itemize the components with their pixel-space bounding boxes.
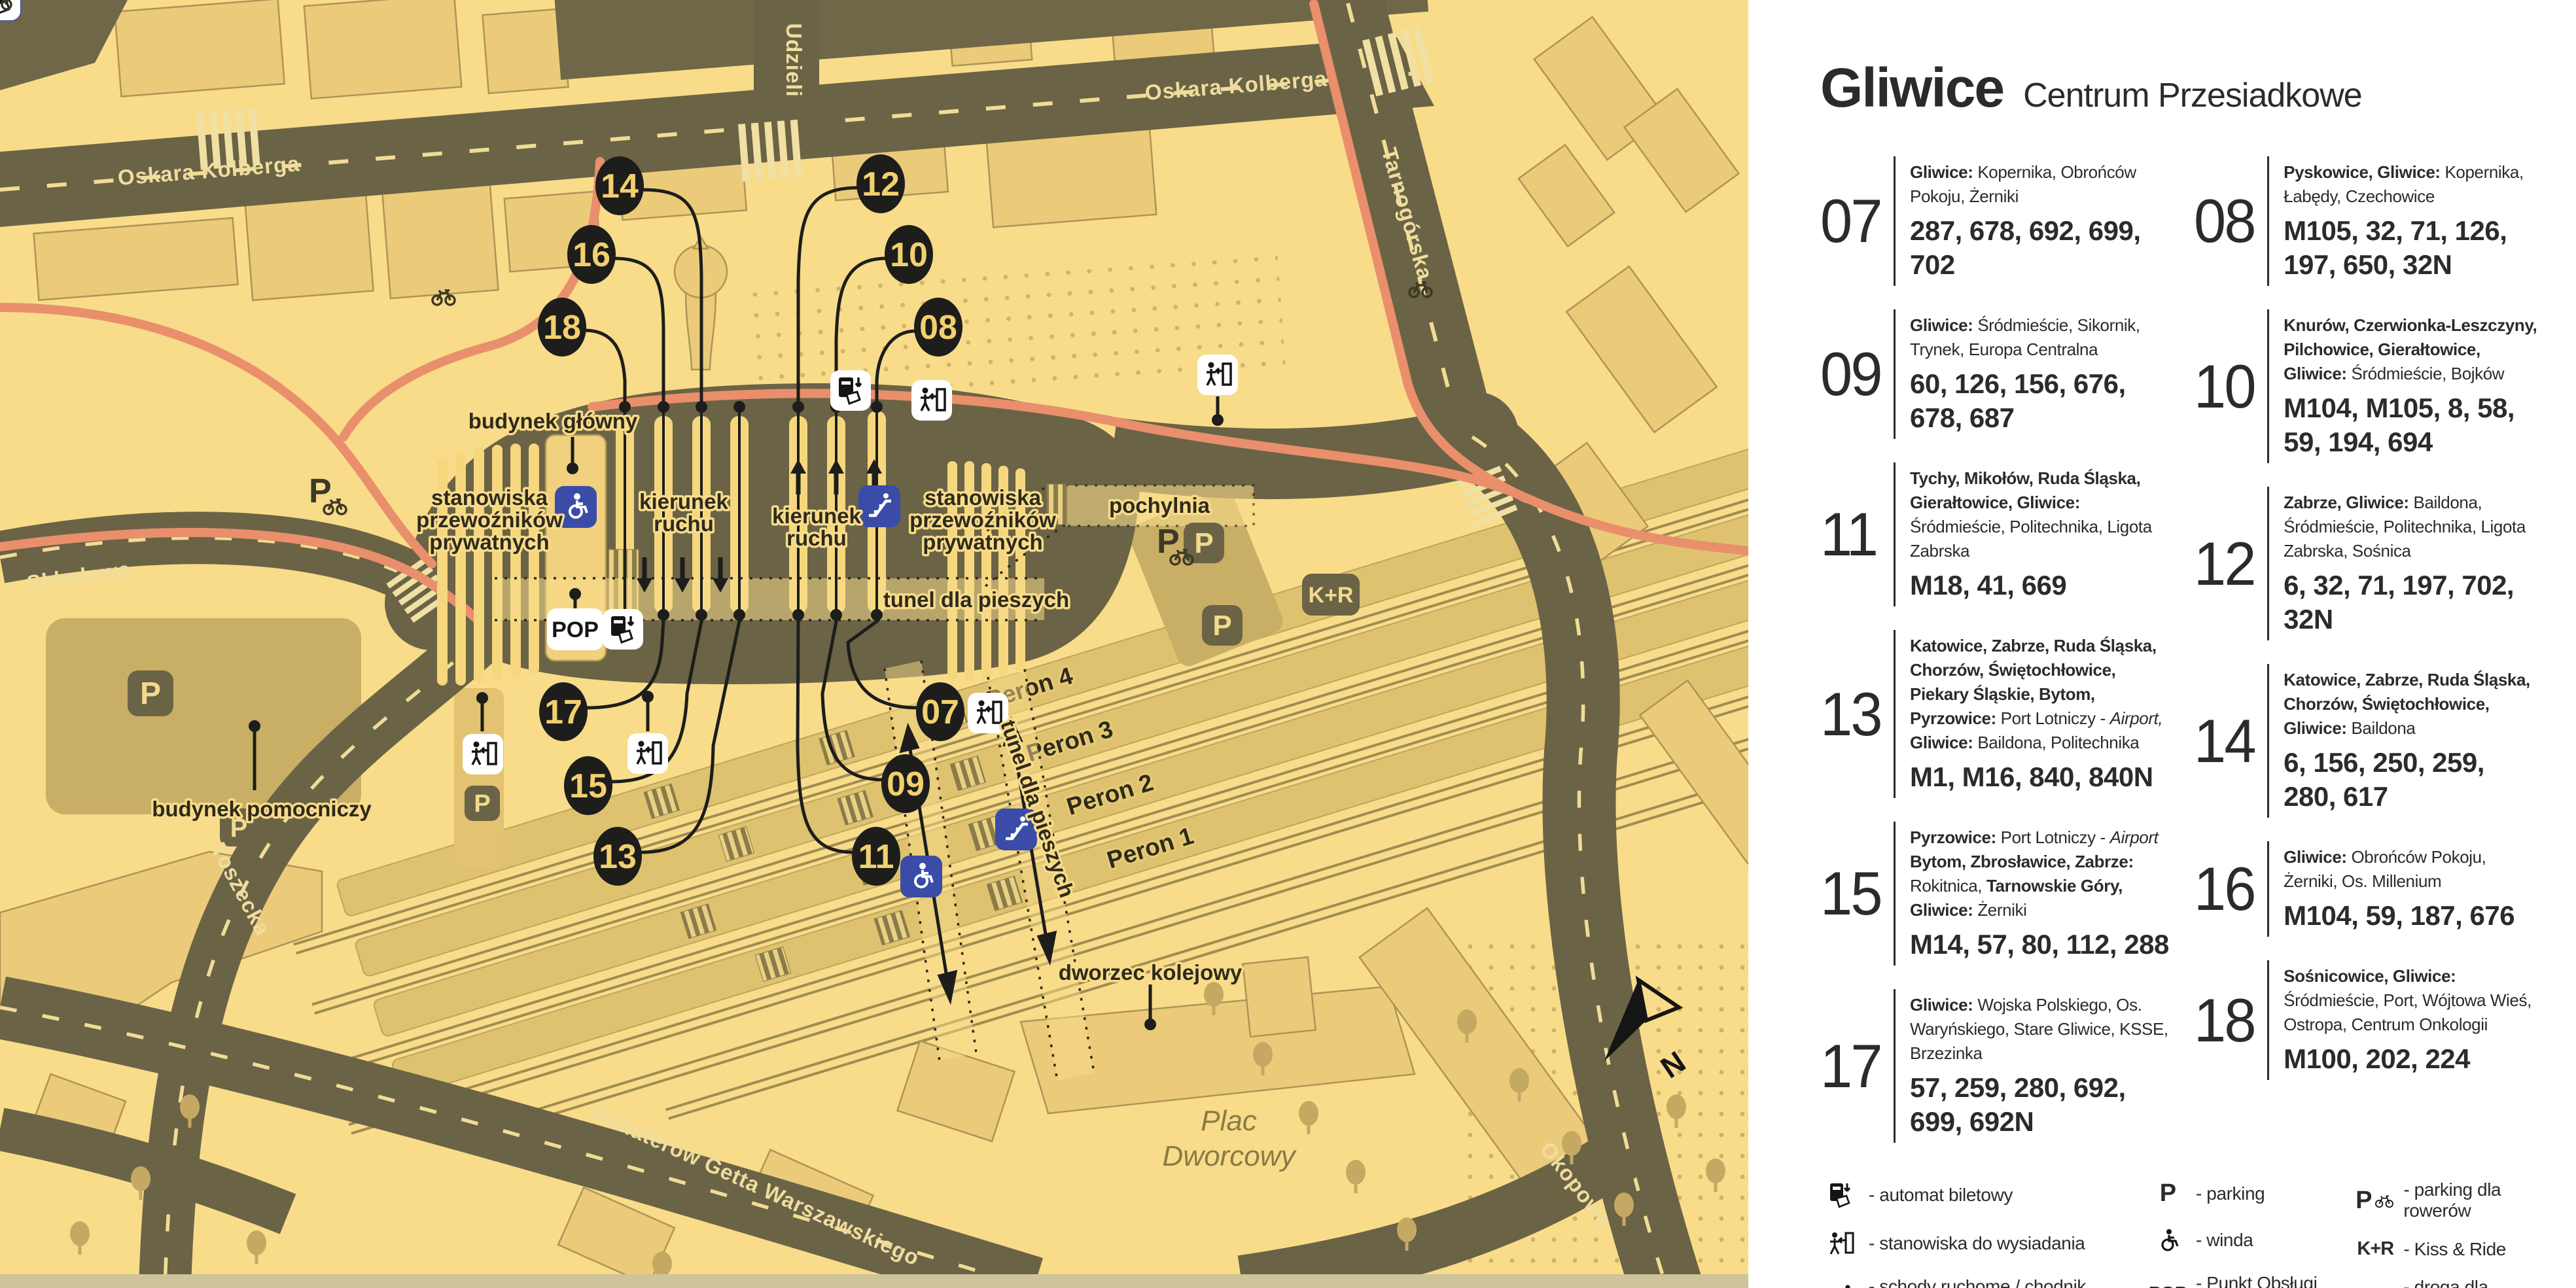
- legend-item: P- parking: [2147, 1179, 2338, 1208]
- stop-lines: M105, 32, 71, 126, 197, 650, 32N: [2284, 214, 2539, 282]
- stanowiska-label-left: stanowiska przewoźników prywatnych: [416, 485, 563, 554]
- legend-item: - stanowiska do wysiadania: [1820, 1228, 2130, 1259]
- legend-label: - parking dla rowerów: [2403, 1179, 2539, 1221]
- kiss-ride-icon: K+R: [2355, 1238, 2395, 1260]
- stop-destinations: Gliwice: Śródmieście, Sikornik, Trynek, …: [1910, 313, 2178, 362]
- stop-circle-10: 10: [885, 225, 933, 284]
- svg-text:ruchu: ruchu: [654, 512, 714, 536]
- svg-text:kierunek: kierunek: [639, 489, 728, 513]
- svg-text:08: 08: [919, 309, 957, 347]
- stop-entry-10: 10Knurów, Czerwionka-Leszczyny, Pilchowi…: [2194, 309, 2539, 463]
- svg-text:ruchu: ruchu: [786, 526, 847, 550]
- stop-entry-07: 07Gliwice: Kopernika, Obrońców Pokoju, Ż…: [1820, 156, 2178, 286]
- entries-column-1: 07Gliwice: Kopernika, Obrońców Pokoju, Ż…: [1820, 156, 2178, 1143]
- stop-number: 16: [2194, 858, 2263, 920]
- stop-circle-17: 17: [539, 682, 588, 741]
- stop-lines: M18, 41, 669: [1910, 568, 2178, 602]
- stop-circle-07: 07: [916, 682, 964, 741]
- legend-label: - Punkt Obsługi Pasażera ZTM: [2196, 1273, 2338, 1288]
- legend-item: - schody ruchome / chodnik ruchomy: [1820, 1276, 2130, 1288]
- ticket-machine-icon: [1820, 1179, 1861, 1211]
- stop-lines: 60, 126, 156, 676, 678, 687: [1910, 367, 2178, 435]
- legend-label: - schody ruchome / chodnik ruchomy: [1869, 1276, 2130, 1288]
- pop-icon: POP: [2147, 1283, 2188, 1288]
- stop-number: 14: [2194, 710, 2263, 772]
- svg-text:K+R: K+R: [1309, 583, 1354, 608]
- legend-label: - stanowiska do wysiadania: [1869, 1233, 2085, 1254]
- legend-label: - winda: [2196, 1230, 2253, 1251]
- svg-text:Dworcowy: Dworcowy: [1163, 1140, 1297, 1172]
- stop-number: 10: [2194, 356, 2263, 417]
- stop-number: 07: [1820, 190, 1889, 252]
- stop-circle-16: 16: [567, 225, 616, 284]
- svg-text:Plac: Plac: [1201, 1105, 1257, 1137]
- stop-number: 13: [1820, 684, 1889, 745]
- ticket-machine-icon: [830, 370, 871, 411]
- page-title: Gliwice: [1820, 56, 2003, 120]
- alighting-strip: [454, 688, 504, 869]
- stop-number: 12: [2194, 533, 2263, 595]
- stop-lines: M104, 59, 187, 676: [2284, 899, 2539, 933]
- stop-destinations: Zabrze, Gliwice: Baildona, Śródmieście, …: [2284, 491, 2539, 563]
- gliwice-interchange-map-poster: Peron 4 Peron 3 Peron 2 Peron 1: [0, 0, 2576, 1288]
- ticket-machine-icon: [603, 609, 643, 650]
- map-area: Peron 4 Peron 3 Peron 2 Peron 1: [0, 0, 1748, 1288]
- stop-destinations: Pyrzowice: Port Lotniczy - Airport Bytom…: [1910, 826, 2178, 922]
- map-bottom-strip: [0, 1274, 1748, 1288]
- stop-destinations: Pyskowice, Gliwice: Kopernika, Łabędy, C…: [2284, 160, 2539, 209]
- svg-text:12: 12: [862, 165, 900, 203]
- stop-entry-13: 13Katowice, Zabrze, Ruda Śląska, Chorzów…: [1820, 630, 2178, 798]
- map-svg: Peron 4 Peron 3 Peron 2 Peron 1: [0, 0, 1748, 1288]
- svg-text:P: P: [1212, 610, 1231, 642]
- pop-badge: POP: [547, 608, 603, 650]
- stop-destinations: Tychy, Mikołów, Ruda Śląska, Gierałtowic…: [1910, 466, 2178, 563]
- stop-lines: M14, 57, 80, 112, 288: [1910, 928, 2178, 962]
- stop-lines: 6, 32, 71, 197, 702, 32N: [2284, 568, 2539, 636]
- alighting-stand-icon: [1197, 355, 1238, 395]
- stop-number: 09: [1820, 343, 1889, 405]
- budynek-glowny-label: budynek główny: [468, 409, 638, 433]
- dworzec-kolejowy-label: dworzec kolejowy: [1059, 960, 1243, 984]
- stop-lines: M104, M105, 8, 58, 59, 194, 694: [2284, 391, 2539, 459]
- svg-text:14: 14: [601, 167, 639, 205]
- legend-item: - automat biletowy: [1820, 1179, 2130, 1211]
- stop-circle-13: 13: [593, 827, 642, 886]
- stop-circle-09: 09: [881, 754, 930, 813]
- alighting-stand-icon: [463, 734, 503, 775]
- legend-item: K+R- Kiss & Ride: [2355, 1238, 2539, 1260]
- stop-circle-12: 12: [856, 154, 905, 213]
- legend-item: - winda: [2147, 1225, 2338, 1256]
- stop-lines: M1, M16, 840, 840N: [1910, 760, 2178, 794]
- stop-entry-17: 17Gliwice: Wojska Polskiego, Os. Waryńsk…: [1820, 989, 2178, 1143]
- legend-label: - automat biletowy: [1869, 1185, 2013, 1206]
- parking-icon: P: [2147, 1179, 2188, 1208]
- svg-text:10: 10: [890, 236, 928, 274]
- legend-label: - Kiss & Ride: [2403, 1239, 2506, 1260]
- elevator-icon: [900, 856, 942, 897]
- stop-lines: 6, 156, 250, 259, 280, 617: [2284, 746, 2539, 814]
- legend-column-1: - automat biletowy - stanowiska do wysia…: [1820, 1179, 2130, 1288]
- tunel-label-horizontal: tunel dla pieszych: [883, 587, 1069, 612]
- svg-text:kierunek: kierunek: [772, 504, 861, 528]
- svg-text:przewoźników: przewoźników: [416, 508, 563, 532]
- stop-destinations: Gliwice: Wojska Polskiego, Os. Waryńskie…: [1910, 993, 2178, 1066]
- stop-entry-11: 11Tychy, Mikołów, Ruda Śląska, Gierałtow…: [1820, 462, 2178, 606]
- stop-destinations: Katowice, Zabrze, Ruda Śląska, Chorzów, …: [1910, 634, 2178, 755]
- legend-label: - droga dla rowerów: [2403, 1277, 2539, 1288]
- bike-parking-icon: P: [2355, 1187, 2395, 1215]
- svg-text:15: 15: [569, 767, 607, 805]
- alighting-stand-icon: [911, 380, 952, 421]
- svg-text:07: 07: [921, 693, 959, 731]
- svg-text:16: 16: [573, 236, 610, 274]
- legend-label: - parking: [2196, 1183, 2265, 1204]
- legend-item: POP- Punkt Obsługi Pasażera ZTM: [2147, 1273, 2338, 1288]
- stop-entry-15: 15Pyrzowice: Port Lotniczy - Airport Byt…: [1820, 822, 2178, 966]
- kiss-and-ride-badge: K+R: [1302, 574, 1360, 616]
- svg-text:P: P: [474, 790, 490, 818]
- exit-icon: [1820, 1228, 1861, 1259]
- svg-text:11: 11: [858, 838, 894, 876]
- stop-destinations: Katowice, Zabrze, Ruda Śląska, Chorzów, …: [2284, 668, 2539, 740]
- stop-entry-14: 14Katowice, Zabrze, Ruda Śląska, Chorzów…: [2194, 664, 2539, 818]
- legend-column-3: P - parking dla rowerówK+R- Kiss & Ride …: [2355, 1179, 2539, 1288]
- legend: - automat biletowy - stanowiska do wysia…: [1820, 1179, 2539, 1288]
- stop-number: 08: [2194, 190, 2263, 252]
- stop-entry-12: 12Zabrze, Gliwice: Baildona, Śródmieście…: [2194, 487, 2539, 640]
- svg-text:09: 09: [887, 765, 925, 803]
- stop-entry-18: 18Sośnicowice, Gliwice: Śródmieście, Por…: [2194, 960, 2539, 1080]
- pochylnia-label: pochylnia: [1109, 493, 1210, 517]
- legend-item: P - parking dla rowerów: [2355, 1179, 2539, 1221]
- budynek-pomocniczy-label: budynek pomocniczy: [152, 797, 372, 821]
- svg-text:prywatnych: prywatnych: [923, 530, 1042, 554]
- stop-destinations: Gliwice: Kopernika, Obrońców Pokoju, Żer…: [1910, 160, 2178, 209]
- svg-text:13: 13: [599, 838, 637, 876]
- stop-entry-09: 09Gliwice: Śródmieście, Sikornik, Trynek…: [1820, 309, 2178, 439]
- svg-text:POP: POP: [552, 618, 599, 642]
- stop-circle-11: 11: [852, 827, 900, 886]
- stop-number: 17: [1820, 1036, 1889, 1097]
- stop-entry-16: 16Gliwice: Obrońców Pokoju, Żerniki, Os.…: [2194, 841, 2539, 937]
- stop-number: 11: [1820, 504, 1889, 565]
- stop-lines: 287, 678, 692, 699, 702: [1910, 214, 2178, 282]
- bike-icon: [2355, 1285, 2395, 1288]
- stop-entry-08: 08Pyskowice, Gliwice: Kopernika, Łabędy,…: [2194, 156, 2539, 286]
- stop-number: 15: [1820, 863, 1889, 924]
- svg-text:stanowiska: stanowiska: [925, 485, 1042, 510]
- stop-circle-08: 08: [914, 298, 962, 357]
- stop-destinations: Gliwice: Obrońców Pokoju, Żerniki, Os. M…: [2284, 845, 2539, 894]
- stop-entries: 07Gliwice: Kopernika, Obrońców Pokoju, Ż…: [1820, 156, 2539, 1143]
- stop-circle-15: 15: [564, 756, 612, 815]
- stop-lines: 57, 259, 280, 692, 699, 692N: [1910, 1071, 2178, 1139]
- panel-title-row: Gliwice Centrum Przesiadkowe: [1820, 56, 2539, 120]
- stop-destinations: Sośnicowice, Gliwice: Śródmieście, Port,…: [2284, 964, 2539, 1037]
- legend-item: - droga dla rowerów: [2355, 1277, 2539, 1288]
- svg-text:prywatnych: prywatnych: [429, 530, 549, 554]
- legend-column-2: P- parking - windaPOP- Punkt Obsługi Pas…: [2147, 1179, 2338, 1288]
- stop-number: 18: [2194, 990, 2263, 1051]
- svg-text:stanowiska: stanowiska: [431, 485, 548, 510]
- svg-text:P: P: [1194, 527, 1213, 559]
- street-label-udzieli: Udzieli: [782, 23, 806, 97]
- escalator-icon: [1820, 1281, 1861, 1288]
- alighting-stand-icon: [627, 733, 668, 774]
- stop-circle-18: 18: [538, 298, 586, 357]
- info-panel: Gliwice Centrum Przesiadkowe 07Gliwice: …: [1748, 0, 2576, 1288]
- stop-lines: M100, 202, 224: [2284, 1042, 2539, 1076]
- entries-column-2: 08Pyskowice, Gliwice: Kopernika, Łabędy,…: [2194, 156, 2539, 1143]
- page-subtitle: Centrum Przesiadkowe: [2023, 76, 2362, 115]
- svg-text:18: 18: [543, 309, 581, 347]
- svg-text:P: P: [140, 676, 161, 711]
- elevator-icon: [2147, 1225, 2188, 1256]
- svg-text:17: 17: [544, 693, 582, 731]
- stop-destinations: Knurów, Czerwionka-Leszczyny, Pilchowice…: [2284, 313, 2539, 386]
- escalator-icon: [858, 485, 900, 527]
- stop-circle-14: 14: [595, 156, 644, 215]
- svg-text:przewoźników: przewoźników: [909, 508, 1056, 532]
- stanowiska-label-right: stanowiska przewoźników prywatnych: [909, 485, 1056, 554]
